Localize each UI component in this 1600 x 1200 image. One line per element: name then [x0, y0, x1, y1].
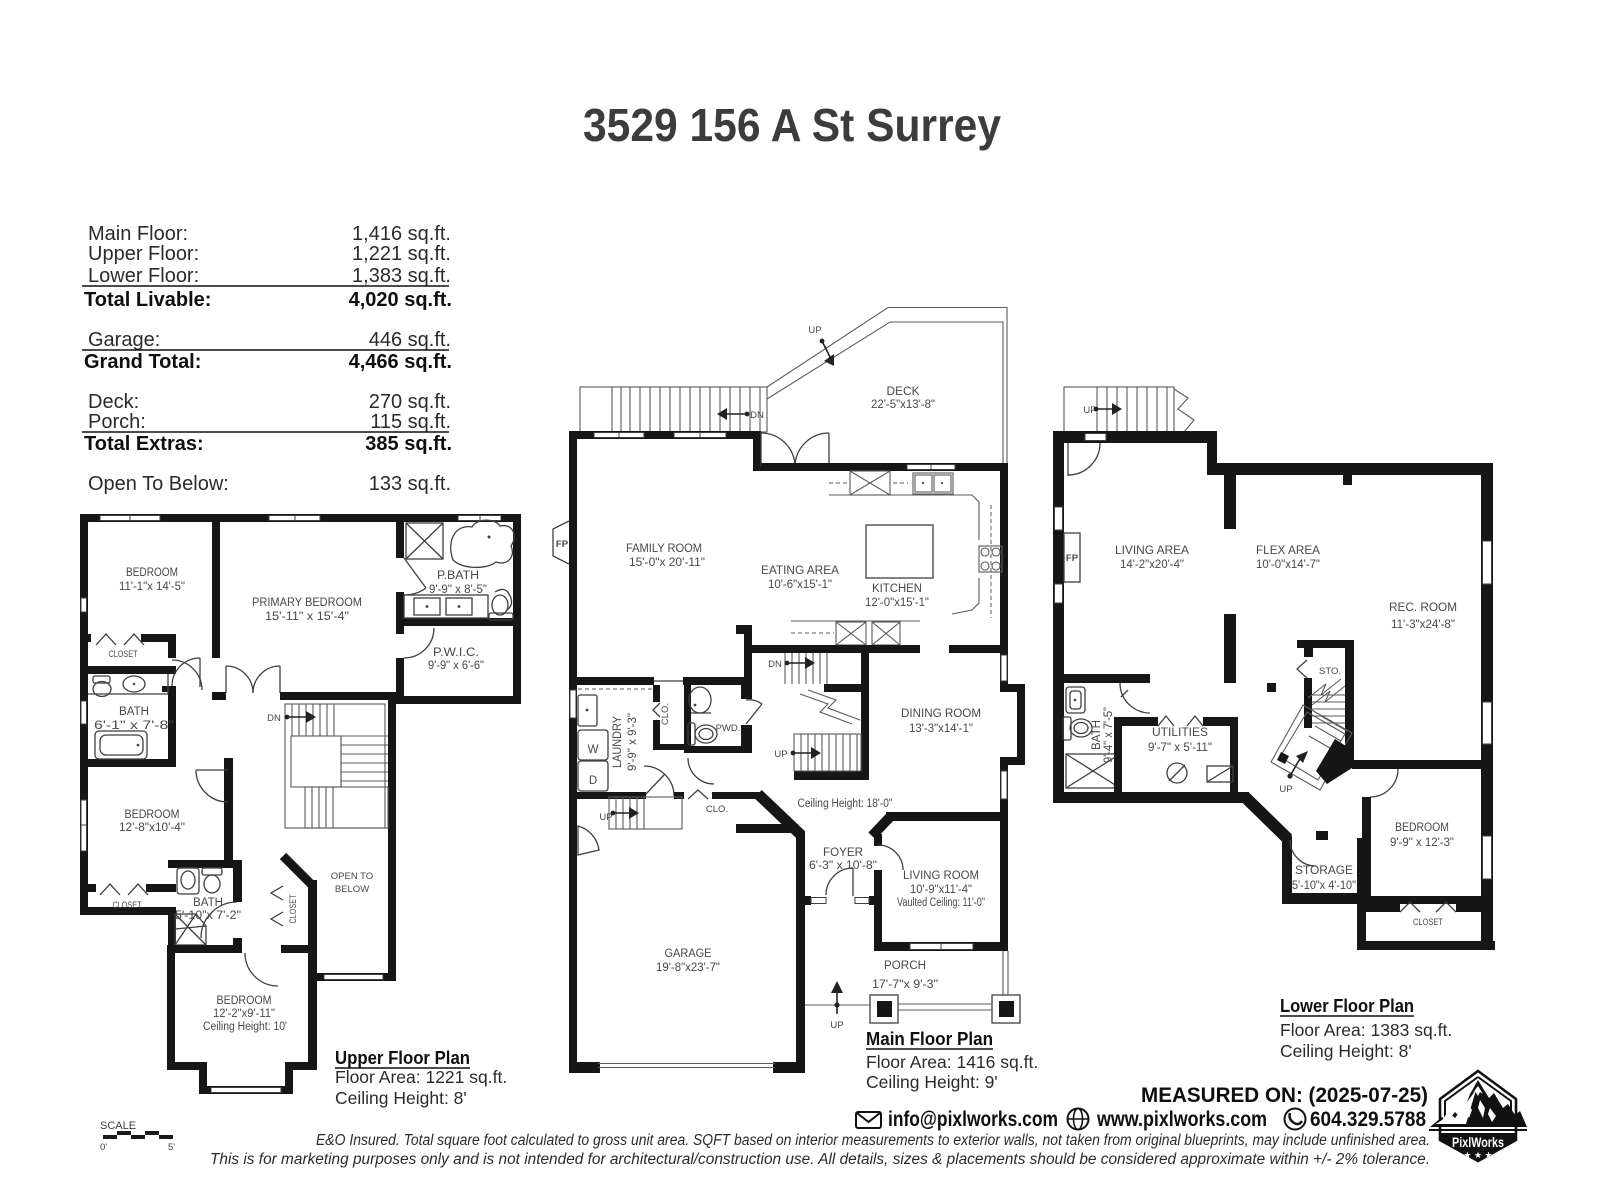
svg-text:E&O Insured. Total square foo: E&O Insured. Total square foot calculate…: [316, 1132, 1430, 1149]
svg-text:Ceiling Height: 18'-0": Ceiling Height: 18'-0": [798, 798, 893, 810]
svg-text:10'-9"x11'-4": 10'-9"x11'-4": [910, 884, 972, 896]
svg-text:Lower Floor Plan: Lower Floor Plan: [1280, 995, 1414, 1016]
svg-text:BATH: BATH: [119, 706, 149, 718]
svg-text:OPEN TO: OPEN TO: [331, 871, 373, 882]
svg-text:446 sq.ft.: 446 sq.ft.: [369, 329, 451, 351]
svg-text:Garage:: Garage:: [88, 329, 160, 351]
svg-text:STO.: STO.: [1319, 666, 1341, 677]
svg-text:5'-10"x 4'-10": 5'-10"x 4'-10": [1292, 880, 1356, 892]
svg-text:1,383 sq.ft.: 1,383 sq.ft.: [352, 265, 451, 287]
svg-text:FP: FP: [556, 539, 569, 550]
svg-text:133 sq.ft.: 133 sq.ft.: [369, 473, 451, 495]
svg-text:12'-0"x15'-1": 12'-0"x15'-1": [865, 597, 929, 609]
svg-text:This is for marketing purposes: This is for marketing purposes only and …: [210, 1151, 1430, 1168]
svg-text:3529 156 A St Surrey: 3529 156 A St Surrey: [583, 99, 1001, 151]
svg-text:UP: UP: [774, 749, 787, 760]
svg-text:Ceiling Height: 8': Ceiling Height: 8': [335, 1088, 467, 1108]
svg-text:LAUNDRY: LAUNDRY: [612, 716, 624, 768]
svg-text:UTILITIES: UTILITIES: [1152, 727, 1208, 739]
svg-text:Grand Total:: Grand Total:: [84, 351, 201, 373]
svg-text:Floor Area: 1416 sq.ft.: Floor Area: 1416 sq.ft.: [866, 1052, 1038, 1072]
svg-text:PWD.: PWD.: [716, 723, 741, 734]
svg-text:Open To Below:: Open To Below:: [88, 473, 229, 495]
svg-text:PixlWorks: PixlWorks: [1452, 1135, 1504, 1150]
svg-text:CLOSET: CLOSET: [288, 894, 299, 923]
svg-text:11'-1"x 14'-5": 11'-1"x 14'-5": [119, 581, 185, 593]
svg-text:15'-11" x 15'-4": 15'-11" x 15'-4": [265, 611, 349, 623]
svg-text:385 sq.ft.: 385 sq.ft.: [365, 433, 452, 455]
svg-text:BEDROOM: BEDROOM: [1395, 822, 1449, 834]
svg-text:Floor Area: 1221 sq.ft.: Floor Area: 1221 sq.ft.: [335, 1067, 507, 1087]
svg-text:1,221 sq.ft.: 1,221 sq.ft.: [352, 243, 451, 265]
svg-text:Vaulted Ceiling: 11'-0": Vaulted Ceiling: 11'-0": [897, 897, 985, 909]
svg-text:15'-0"x 20'-11": 15'-0"x 20'-11": [629, 557, 705, 569]
svg-text:UP: UP: [1279, 784, 1292, 795]
svg-text:Upper Floor:: Upper Floor:: [88, 243, 199, 265]
svg-text:CLO.: CLO.: [660, 703, 671, 725]
svg-text:9'-9" x 9'-3": 9'-9" x 9'-3": [627, 713, 639, 771]
svg-text:REC. ROOM: REC. ROOM: [1389, 602, 1457, 614]
svg-text:DINING ROOM: DINING ROOM: [901, 708, 981, 720]
svg-text:Ceiling Height: 9': Ceiling Height: 9': [866, 1072, 998, 1092]
svg-text:UP: UP: [808, 325, 821, 336]
svg-text:BEDROOM: BEDROOM: [125, 809, 180, 821]
svg-text:Deck:: Deck:: [88, 391, 139, 413]
svg-text:6'-1" x 7'-8": 6'-1" x 7'-8": [94, 720, 174, 732]
svg-text:9'-9" x 12'-3": 9'-9" x 12'-3": [1390, 837, 1454, 849]
svg-text:BATH: BATH: [193, 897, 223, 909]
svg-text:SCALE: SCALE: [100, 1120, 136, 1132]
svg-text:5'-10"x 7'-2": 5'-10"x 7'-2": [175, 910, 241, 922]
svg-text:CLOSET: CLOSET: [1413, 917, 1443, 928]
svg-text:11'-3"x24'-8": 11'-3"x24'-8": [1391, 619, 1455, 631]
svg-text:DN: DN: [750, 410, 764, 421]
svg-text:22'-5"x13'-8": 22'-5"x13'-8": [871, 399, 935, 411]
svg-text:0': 0': [100, 1142, 107, 1153]
svg-text:6'-3" x 10'-8": 6'-3" x 10'-8": [809, 860, 877, 872]
svg-text:12'-8"x10'-4": 12'-8"x10'-4": [119, 822, 185, 834]
svg-text:9'-9" x 8'-5": 9'-9" x 8'-5": [429, 584, 487, 596]
svg-text:P.W.I.C.: P.W.I.C.: [433, 647, 479, 659]
svg-text:D: D: [589, 775, 597, 787]
svg-text:UP: UP: [599, 812, 612, 823]
svg-text:4,466 sq.ft.: 4,466 sq.ft.: [349, 351, 452, 373]
svg-text:CLOSET: CLOSET: [109, 649, 138, 660]
svg-text:UP: UP: [830, 1020, 843, 1031]
svg-text:13'-3"x14'-1": 13'-3"x14'-1": [909, 723, 973, 735]
svg-text:Floor Area: 1383 sq.ft.: Floor Area: 1383 sq.ft.: [1280, 1020, 1452, 1040]
svg-text:LIVING AREA: LIVING AREA: [1115, 545, 1189, 557]
svg-text:Main Floor:: Main Floor:: [88, 223, 188, 245]
svg-text:DECK: DECK: [887, 386, 920, 398]
svg-text:9'-7" x 5'-11": 9'-7" x 5'-11": [1148, 742, 1212, 754]
svg-text:STORAGE: STORAGE: [1295, 865, 1353, 877]
svg-text:17'-7"x 9'-3": 17'-7"x 9'-3": [872, 979, 938, 991]
svg-text:FP: FP: [1066, 553, 1079, 564]
svg-text:info@pixlworks.com: info@pixlworks.com: [888, 1107, 1058, 1131]
svg-text:BATH: BATH: [1091, 720, 1103, 750]
svg-text:5': 5': [168, 1142, 175, 1153]
svg-text:12'-2"x9'-11": 12'-2"x9'-11": [213, 1008, 275, 1020]
svg-text:270 sq.ft.: 270 sq.ft.: [369, 391, 451, 413]
svg-text:Total Livable:: Total Livable:: [84, 289, 211, 311]
svg-text:115 sq.ft.: 115 sq.ft.: [370, 411, 451, 433]
svg-text:Ceiling Height: 8': Ceiling Height: 8': [1280, 1041, 1412, 1061]
svg-text:CLOSET: CLOSET: [113, 900, 142, 911]
svg-text:BEDROOM: BEDROOM: [217, 995, 272, 1007]
svg-text:GARAGE: GARAGE: [665, 948, 712, 960]
svg-text:BELOW: BELOW: [335, 884, 369, 895]
svg-text:W: W: [588, 744, 599, 756]
svg-text:9'-9" x 6'-6": 9'-9" x 6'-6": [428, 660, 484, 672]
svg-text:Ceiling Height: 10': Ceiling Height: 10': [203, 1021, 287, 1033]
svg-text:10'-0"x14'-7": 10'-0"x14'-7": [1256, 559, 1320, 571]
svg-text:9'-4" x 7'-5": 9'-4" x 7'-5": [1103, 707, 1115, 763]
svg-text:FOYER: FOYER: [823, 847, 863, 859]
svg-text:LIVING ROOM: LIVING ROOM: [903, 870, 979, 882]
svg-text:FAMILY ROOM: FAMILY ROOM: [626, 543, 702, 555]
svg-text:BEDROOM: BEDROOM: [126, 567, 178, 579]
svg-text:4,020 sq.ft.: 4,020 sq.ft.: [349, 289, 452, 311]
svg-text:Upper Floor Plan: Upper Floor Plan: [335, 1047, 470, 1068]
svg-text:14'-2"x20'-4": 14'-2"x20'-4": [1120, 559, 1184, 571]
svg-text:P.BATH: P.BATH: [437, 570, 479, 582]
svg-text:CLO.: CLO.: [706, 804, 728, 815]
svg-text:PRIMARY BEDROOM: PRIMARY BEDROOM: [252, 597, 362, 609]
svg-text:DN: DN: [267, 713, 281, 724]
svg-text:MEASURED ON: (2025-07-25): MEASURED ON: (2025-07-25): [1141, 1083, 1428, 1107]
svg-text:PORCH: PORCH: [884, 960, 926, 972]
svg-text:★ ★ ★: ★ ★ ★: [1463, 1150, 1492, 1160]
svg-text:604.329.5788: 604.329.5788: [1310, 1107, 1426, 1131]
svg-text:www.pixlworks.com: www.pixlworks.com: [1096, 1107, 1267, 1131]
svg-text:Lower Floor:: Lower Floor:: [88, 265, 199, 287]
svg-text:19'-8"x23'-7": 19'-8"x23'-7": [656, 962, 720, 974]
svg-text:Total Extras:: Total Extras:: [84, 433, 204, 455]
svg-text:Main Floor Plan: Main Floor Plan: [866, 1028, 993, 1049]
svg-text:KITCHEN: KITCHEN: [872, 583, 922, 595]
svg-text:EATING AREA: EATING AREA: [761, 565, 839, 577]
svg-text:10'-6"x15'-1": 10'-6"x15'-1": [768, 579, 832, 591]
svg-text:1,416 sq.ft.: 1,416 sq.ft.: [352, 223, 451, 245]
svg-text:Porch:: Porch:: [88, 411, 146, 433]
svg-text:DN: DN: [768, 659, 782, 670]
svg-text:FLEX AREA: FLEX AREA: [1256, 545, 1320, 557]
